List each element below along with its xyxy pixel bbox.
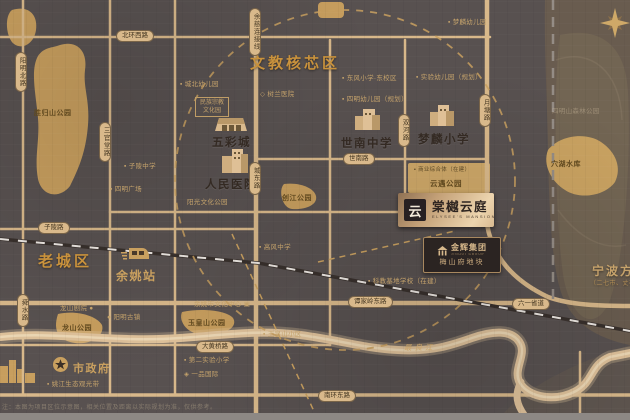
label-culture-center: 余姚市文化中心 ▣ (194, 301, 250, 309)
label-religion-line2: 文化园 (200, 107, 224, 115)
government-star-icon (52, 356, 69, 378)
label-ziling-middle-school: ▪ 子陵中学 (124, 163, 156, 171)
road-tanjialing-east: 谭家岭东路 (348, 296, 393, 308)
label-siming-kindergarten: ▪ 四明幼儿园（规划） (342, 96, 408, 104)
road-shunshui: 舜水路 (17, 294, 29, 327)
yunyu-park-label: 云遇公园 (430, 178, 462, 189)
hospital-building-icon (220, 147, 250, 179)
train-station-icon (120, 246, 150, 267)
core-area-title: 文教核芯区 (250, 52, 340, 73)
label-longshan-theatre: 龙山剧院 ● (60, 305, 94, 313)
bottom-bar (0, 413, 630, 420)
project-name: 棠樾云庭 (432, 201, 496, 215)
poi-menglin-primary: 梦麟小学 (418, 131, 470, 147)
road-yuci-link: 余慈连接线 (249, 8, 261, 56)
shenggui-park-shape (34, 44, 88, 195)
label-gaofeng-middle-school: ▪ 高风中学 (259, 244, 291, 252)
compass-icon (600, 6, 630, 45)
label-yangming-old-town: ● 阳明古镇 (107, 314, 141, 322)
poi-yuyao-station: 余姚站 (116, 267, 157, 284)
road-beihuan-west: 北环西路 (116, 30, 154, 42)
map-disclaimer: 注：本图为项目区位示意图，相关位置及距离以实际规划为准，仅供参考。 (2, 402, 217, 411)
road-chengdong: 城东路 (249, 162, 261, 195)
label-shulan-hospital: ◇ 树兰医院 (260, 91, 295, 99)
label-shiyan-kindergarten: ▪ 实验幼儿园（规划） (416, 74, 482, 82)
poi-shinan-middle-school: 世南中学 (341, 135, 393, 151)
ningbo-direction-sub: （二七市、丈亭） (590, 278, 630, 287)
blob-top-left (7, 9, 36, 47)
menglin-school-building-icon (428, 103, 456, 133)
label-yipin-international: ◈ 一品国际 (184, 371, 219, 379)
yunyu-park-note: ▪ 商业综合体（在建） (414, 167, 470, 174)
shenggui-park-label: 胜归山公园 (34, 108, 72, 118)
road-yuetang: 月塘路 (479, 94, 491, 127)
label-dongfeng-primary: ▪ 东风小学·东校区 (342, 75, 397, 83)
developer-pavilion-icon (437, 246, 448, 256)
location-map: 文教核芯区 老城区 宁波方向 （二七市、丈亭） 五彩城 人民医院 世南中学 梦麟… (0, 0, 630, 420)
poi-wucai-mall: 五彩城 (212, 134, 251, 150)
label-yuhuangshan-community: ▪ 玉皇山小区 (263, 331, 302, 339)
road-liuyi-provincial: 六一省道 (512, 298, 550, 310)
road-shinan: 世南路 (343, 153, 375, 165)
poi-city-hall: 市政府 (73, 360, 111, 376)
label-siming-plaza: ▪ 四明广场 (110, 186, 142, 194)
label-religion-culture-park: 民族宗教 文化园 (195, 97, 229, 117)
railway-line (0, 239, 630, 331)
developer-plot: 梅山府地块 (440, 259, 485, 266)
label-chengbei-kindergarten: ▪ 城北幼儿园 (180, 81, 219, 89)
shinan-school-building-icon (352, 106, 382, 137)
chuangjiang-park-label: 创江公园 (282, 193, 312, 203)
label-yaojiang-eco-belt: ▪ 姚江生态观光带 (47, 381, 99, 389)
river-label: 最良江 (404, 343, 436, 352)
project-logo: 云 (404, 199, 426, 221)
label-menglin-kindergarten: ▪ 梦麟幼儿园 (448, 19, 487, 27)
longshan-park-label: 龙山公园 (62, 323, 92, 333)
ningbo-direction-title: 宁波方向 (592, 262, 630, 279)
yuhuang-park-label: 玉皇山公园 (188, 318, 226, 328)
developer-name: 金辉集团 (451, 244, 487, 252)
label-sunshine-culture-park: 阳光文化公园 (187, 199, 228, 207)
forest-label: 四明山森林公园 (552, 108, 600, 116)
label-second-experimental-primary: ▪ 第二实验小学 (184, 357, 230, 365)
road-sanguantang: 三官堂路 (99, 122, 111, 162)
road-nanhuan-east: 南环东路 (318, 390, 356, 402)
old-town-title: 老城区 (38, 250, 92, 271)
dashed-boundaries (175, 0, 553, 420)
road-yangming-north: 阳明北路 (15, 52, 27, 92)
xuehu-lake-label: 穴湖水库 (551, 159, 581, 169)
road-dahuangqiao: 大黄桥路 (196, 341, 234, 353)
road-ziling: 子陵路 (38, 222, 70, 234)
label-religion-line1: 民族宗教 (200, 99, 224, 107)
road-shuanghe: 双河路 (398, 114, 410, 147)
project-name-en: ELYSEE'S MANSION (432, 214, 496, 219)
project-plaque: 云 棠樾云庭 ELYSEE'S MANSION (398, 193, 494, 227)
developer-plaque: 金辉集团 JINHUI GROUP 梅山府地块 (423, 237, 501, 273)
old-town-buildings-silhouette (0, 360, 35, 383)
label-keji-base-school: ▪ 科教基地学校（在建） (368, 278, 441, 286)
developer-name-en: JINHUI GROUP (451, 252, 487, 256)
